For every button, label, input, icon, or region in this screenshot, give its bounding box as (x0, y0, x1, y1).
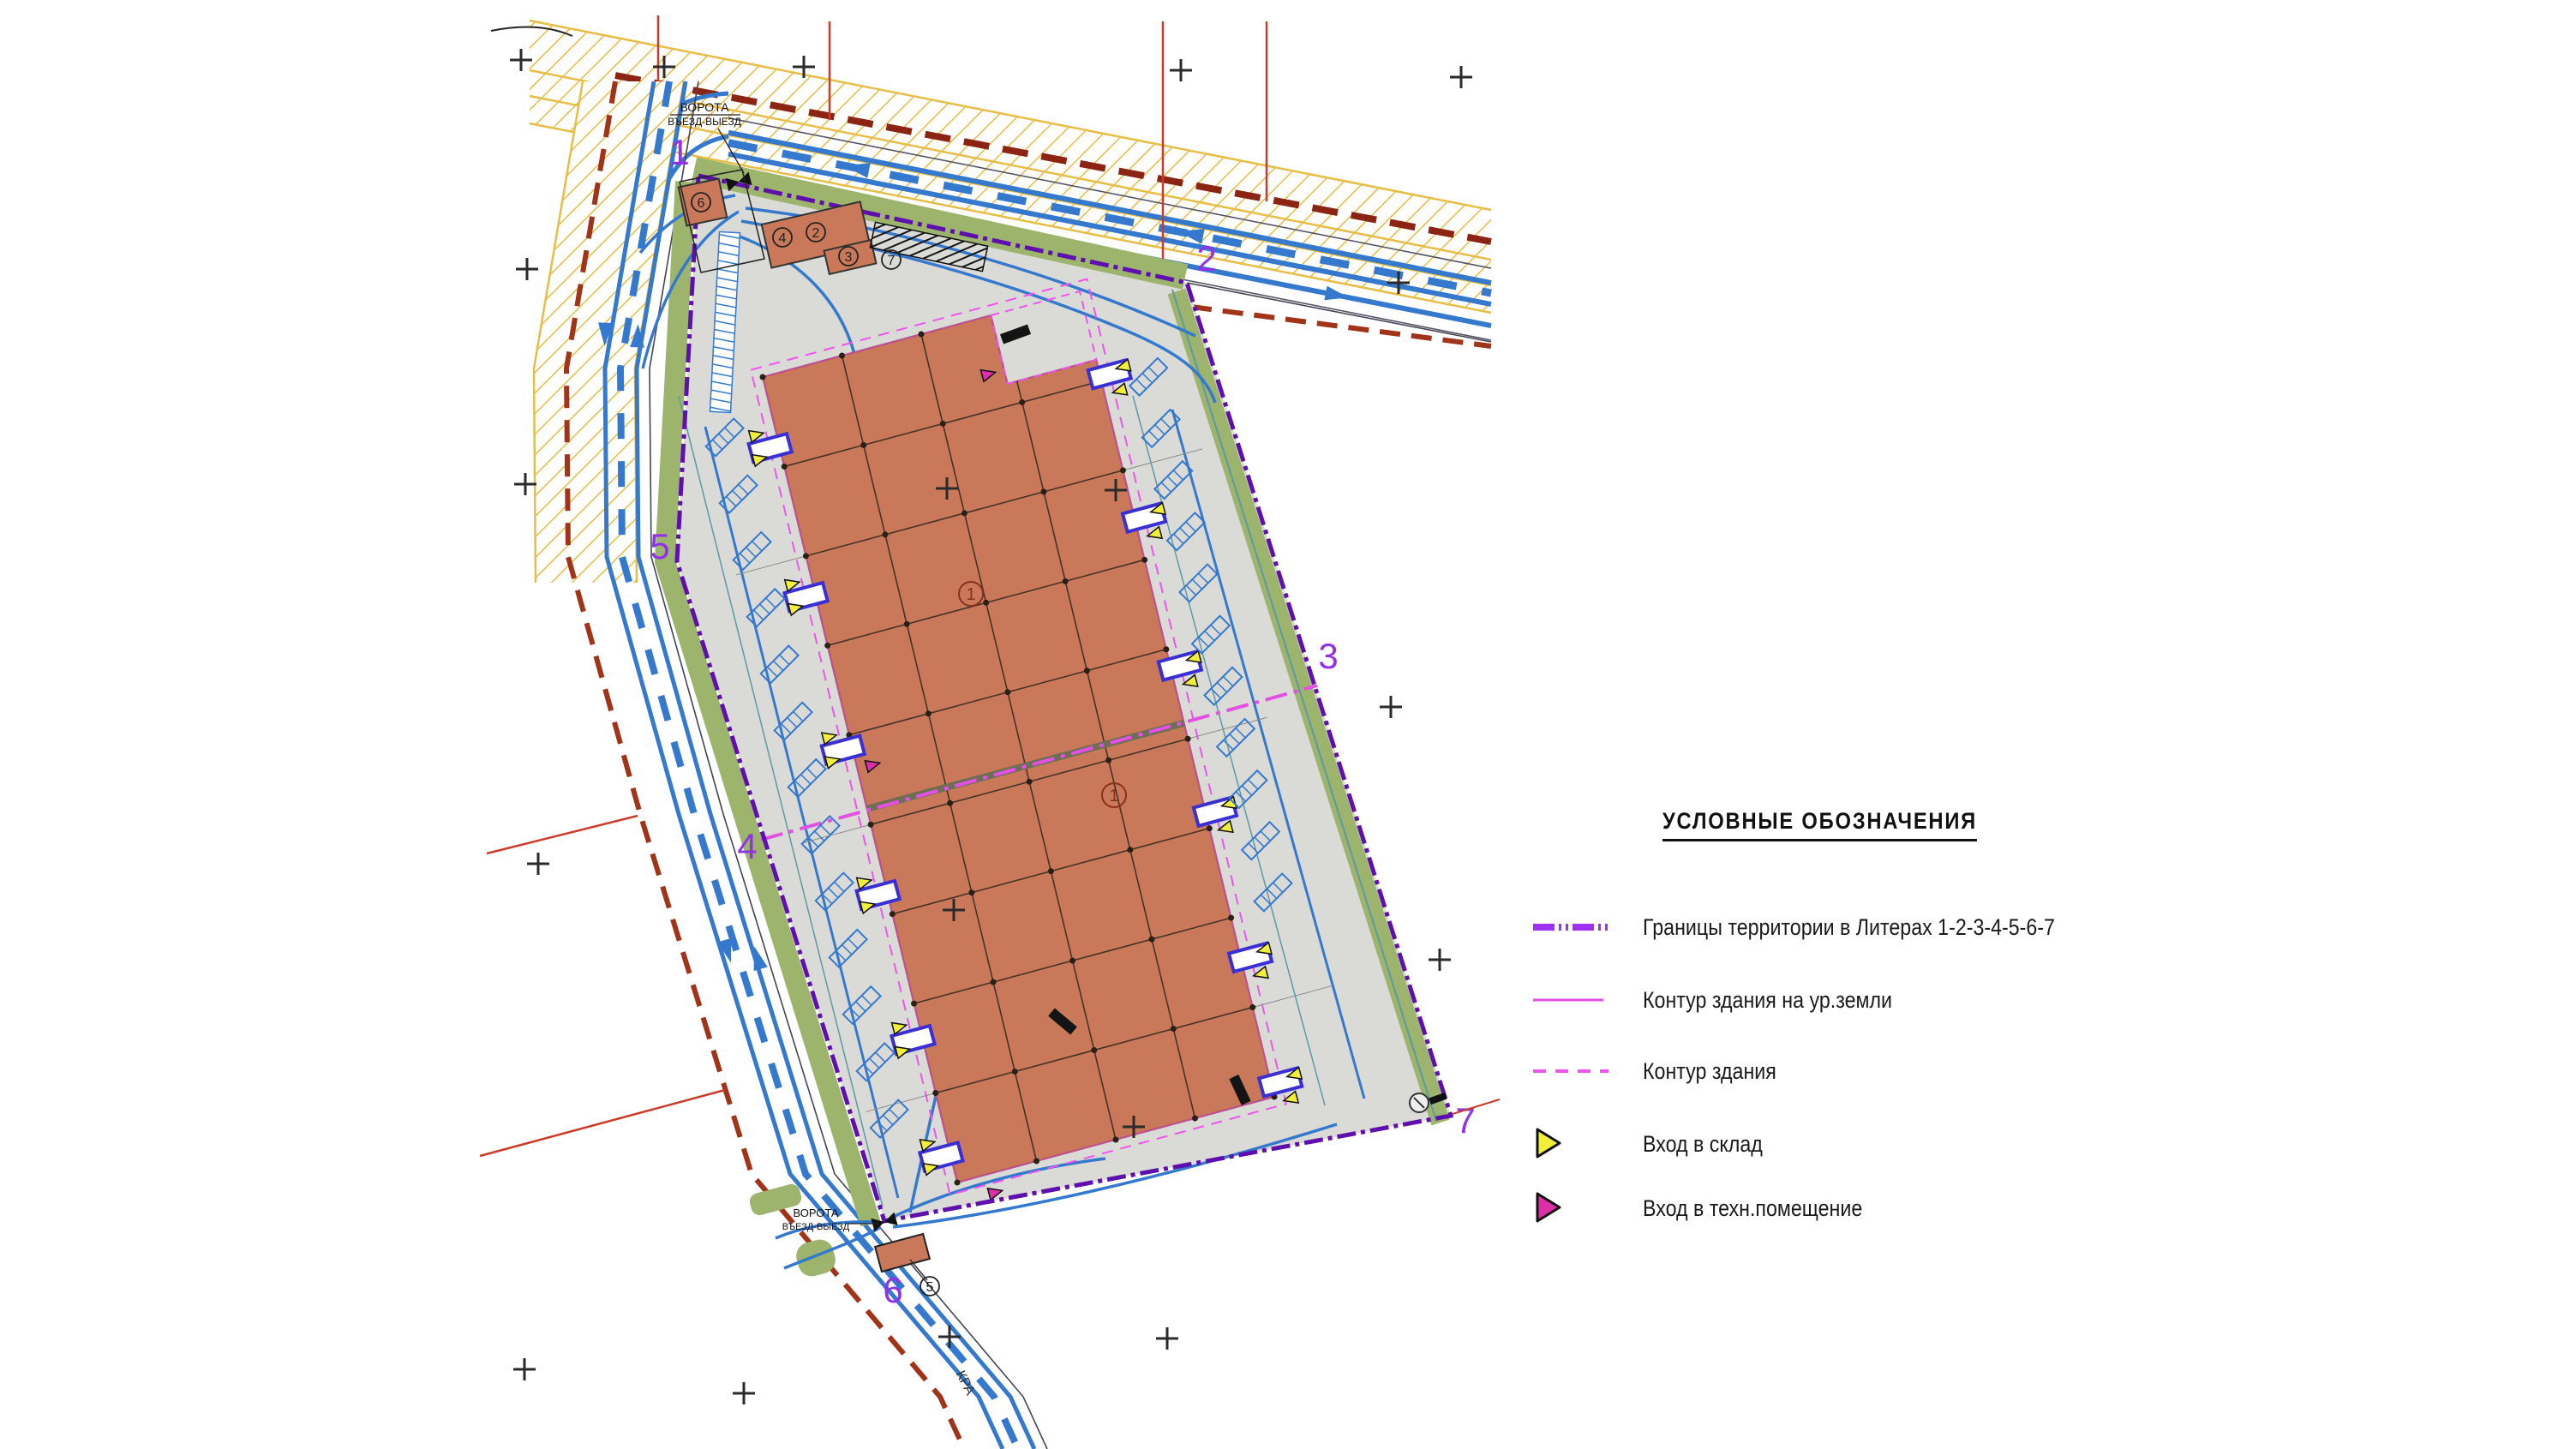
svg-text:4: 4 (779, 231, 787, 246)
warehouse-entrance-triangle-symbol (1532, 1127, 1614, 1161)
legend-item-label: Вход в склад (1643, 1131, 1763, 1158)
small-building (875, 1234, 930, 1272)
svg-text:1: 1 (669, 132, 689, 172)
svg-text:6: 6 (883, 1270, 902, 1310)
legend-panel: УСЛОВНЫЕ ОБОЗНАЧЕНИЯ Границы территории … (1532, 801, 2235, 1264)
svg-text:5: 5 (926, 1280, 934, 1295)
svg-text:5: 5 (650, 526, 669, 566)
legend-item-label: Контур здания на ур.земли (1643, 987, 1892, 1014)
legend-title: УСЛОВНЫЕ ОБОЗНАЧЕНИЯ (1662, 808, 1977, 841)
svg-text:ВЪЕЗД-ВЫЕЗД: ВЪЕЗД-ВЫЕЗД (668, 116, 741, 128)
legend-item-label: Контур здания (1643, 1058, 1776, 1085)
legend-item-label: Границы территории в Литерах 1-2-3-4-5-6… (1643, 914, 2055, 941)
svg-text:4: 4 (737, 826, 757, 866)
legend-item-label: Вход в техн.помещение (1643, 1195, 1862, 1222)
svg-text:ВЪЕЗД-ВЫЕЗД: ВЪЕЗД-ВЫЕЗД (782, 1222, 850, 1232)
building-contour-dashed-line-symbol (1532, 1065, 1614, 1077)
territory-boundary-line-symbol (1532, 921, 1614, 933)
svg-text:ВОРОТА: ВОРОТА (793, 1207, 838, 1219)
svg-text:3: 3 (1318, 636, 1338, 676)
svg-text:1: 1 (966, 585, 975, 604)
building-contour-ground-line-symbol (1532, 994, 1614, 1006)
site-plan-page: КРА111234567ВОРОТАВЪЕЗД-ВЫЕЗДВОРОТАВЪЕЗД… (0, 0, 2576, 1449)
svg-text:2: 2 (1196, 238, 1216, 278)
svg-text:1: 1 (1109, 787, 1118, 805)
svg-text:2: 2 (812, 226, 820, 241)
svg-text:7: 7 (888, 254, 896, 268)
tech-room-entrance-triangle-symbol (1532, 1191, 1614, 1225)
svg-text:ВОРОТА: ВОРОТА (680, 100, 729, 114)
svg-text:7: 7 (1455, 1100, 1475, 1141)
svg-text:6: 6 (698, 196, 705, 211)
svg-text:3: 3 (845, 250, 853, 265)
